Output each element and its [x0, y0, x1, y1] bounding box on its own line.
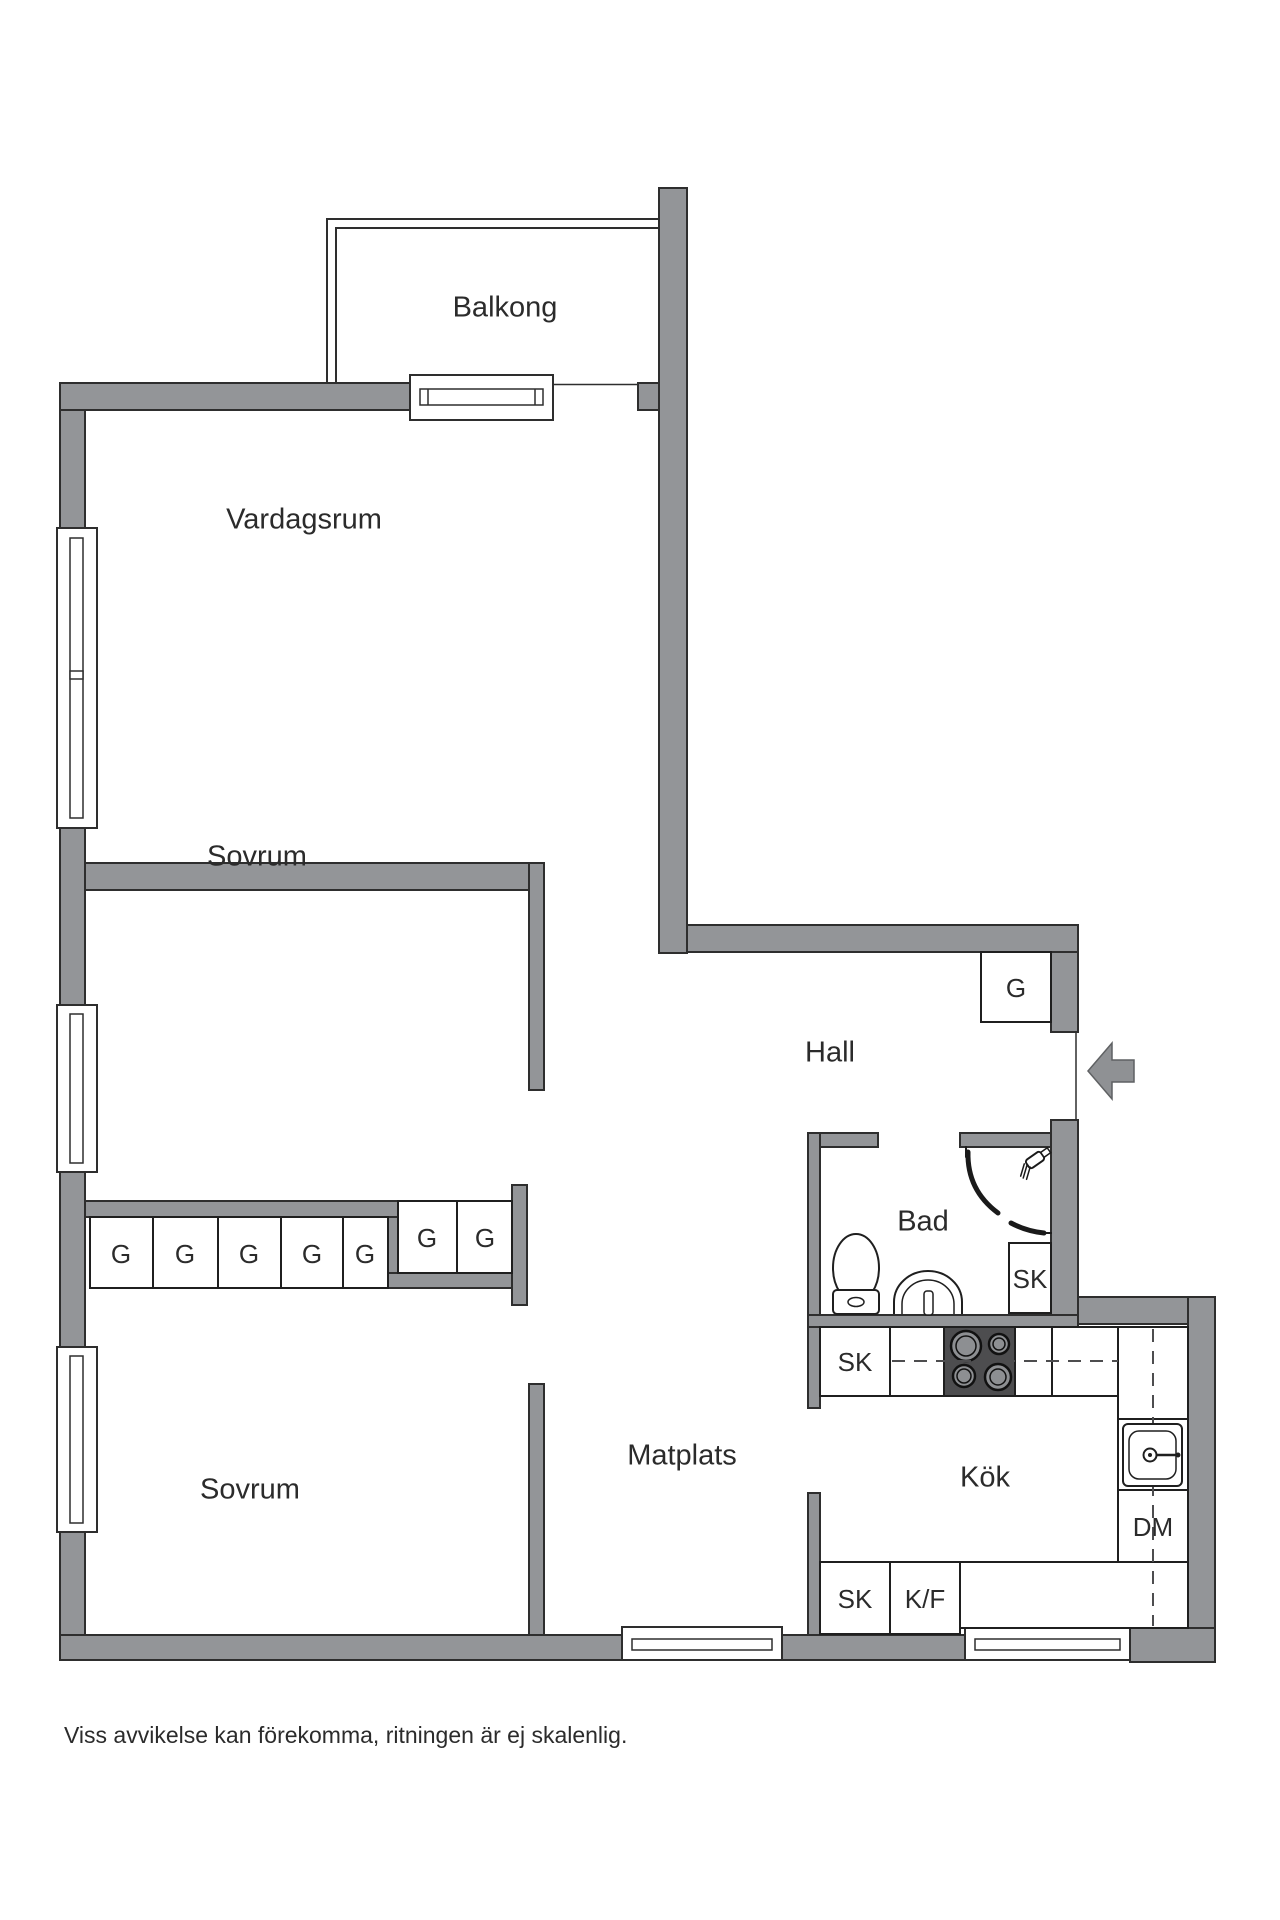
disclaimer-text: Viss avvikelse kan förekomma, ritningen …: [64, 1722, 627, 1749]
bedroom-wardrobe-label-3: G: [239, 1241, 259, 1267]
wall-kitchen-left: [808, 1493, 820, 1635]
wall-bedroom1-bottom: [85, 1201, 398, 1217]
room-label-bad: Bad: [897, 1208, 949, 1237]
corridor-wardrobe-label-1: G: [417, 1225, 437, 1251]
wall-entry-lower: [1051, 1120, 1078, 1324]
bathroom-sink-icon: [894, 1271, 962, 1315]
window-bottom-1: [622, 1627, 782, 1660]
dishwasher-label: DM: [1133, 1514, 1173, 1540]
wall-entry-upper: [1051, 952, 1078, 1032]
wall-livingroom-bedroom: [85, 863, 544, 890]
wall-bottom-right-corner: [1130, 1628, 1215, 1662]
bedroom-wardrobe-label-4: G: [302, 1241, 322, 1267]
window-bedroom2: [57, 1347, 97, 1532]
fridge-freezer-label: K/F: [905, 1586, 945, 1612]
wall-bedroom1-right: [529, 863, 544, 1090]
wall-bedroom2-right: [529, 1384, 544, 1635]
wall-top: [60, 383, 410, 410]
bathroom-cabinet-label: SK: [1013, 1266, 1048, 1292]
shower-head-icon: [1015, 1146, 1055, 1181]
window-balcony-door: [410, 375, 553, 420]
corridor-wardrobe-label-2: G: [475, 1225, 495, 1251]
kitchen-sink-icon: [1123, 1424, 1182, 1486]
wall-balcony-right: [659, 188, 687, 953]
shower-icon: [966, 1146, 1055, 1233]
wall-right: [1188, 1297, 1215, 1662]
window-bottom-2: [965, 1627, 1130, 1660]
room-label-kok: Kök: [960, 1464, 1010, 1493]
bedroom-wardrobe-label-5: G: [355, 1241, 375, 1267]
window-livingroom: [57, 528, 97, 828]
entrance-arrow-icon: [1088, 1043, 1134, 1099]
hall-wardrobe-label: G: [1006, 975, 1026, 1001]
wall-top-stub: [638, 383, 660, 410]
kitchen-cabinet-lower-label: SK: [838, 1586, 873, 1612]
window-bedroom1: [57, 1005, 97, 1172]
wall-bath-left: [808, 1133, 820, 1408]
wall-bottom-mid: [782, 1635, 965, 1660]
toilet-icon: [833, 1234, 879, 1314]
wall-bath-bottom: [808, 1315, 1078, 1327]
wall-bath-top-right: [960, 1133, 1051, 1147]
wall-closet-right: [512, 1185, 527, 1305]
burner-icon: [989, 1334, 1009, 1354]
room-label-balkong: Balkong: [453, 294, 558, 323]
room-label-vardagsrum: Vardagsrum: [226, 506, 382, 535]
wall-bottom-left: [60, 1635, 622, 1660]
kitchen-counter-box-3: [1052, 1327, 1118, 1396]
floor-plan-drawing: [0, 0, 1280, 1920]
floor-plan-page: Balkong Vardagsrum Sovrum Hall Bad Matpl…: [0, 0, 1280, 1920]
room-label-sovrum-1: Sovrum: [207, 843, 307, 872]
bedroom-wardrobe-label-2: G: [175, 1241, 195, 1267]
room-label-matplats: Matplats: [627, 1442, 737, 1471]
wall-hall-top: [687, 925, 1078, 952]
room-label-sovrum-2: Sovrum: [200, 1476, 300, 1505]
room-label-hall: Hall: [805, 1039, 855, 1068]
burner-icon: [985, 1364, 1011, 1390]
wall-closet-bottom: [388, 1273, 527, 1288]
bedroom-wardrobe-label-1: G: [111, 1241, 131, 1267]
kitchen-cabinet-upper-label: SK: [838, 1349, 873, 1375]
